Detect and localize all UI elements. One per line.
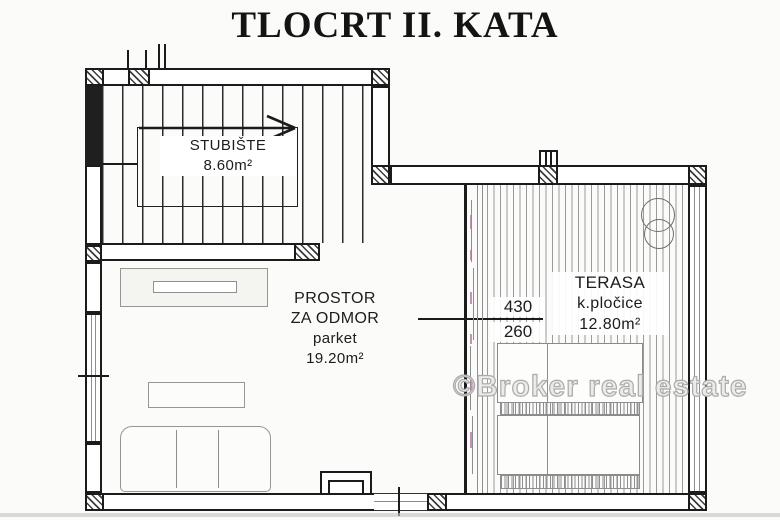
sliding-door-track <box>472 416 473 474</box>
dimension-depth: 260 <box>491 322 545 342</box>
chimney-tick <box>550 152 552 165</box>
glass-wall-line <box>464 185 467 493</box>
sofa-cushion-divider <box>218 430 219 488</box>
dimension-width: 430 <box>491 297 545 317</box>
chimney-tick <box>164 44 166 69</box>
staircase-name: STUBIŠTE <box>160 136 296 156</box>
lounger-divider <box>547 416 548 474</box>
terrace-floor: k.pločice <box>552 293 668 314</box>
terrace-name: TERASA <box>552 272 668 293</box>
chimney-tick <box>127 50 129 69</box>
chimney-tick <box>145 50 147 69</box>
wall-hatch-block <box>128 68 150 86</box>
scan-artifact-tick <box>470 215 472 229</box>
wall-left-upper <box>85 86 102 165</box>
wall-hatch-block <box>688 493 707 511</box>
wall-left-mid <box>85 165 102 245</box>
page-title: TLOCRT II. KATA <box>10 4 780 47</box>
glass-wall-line <box>477 185 478 493</box>
wall-hatch-block <box>538 165 558 185</box>
floor-plan-canvas: TLOCRT II. KATA STUBIŠTE 8.60m² TERASA k… <box>0 0 780 520</box>
lounge-name-line2: ZA ODMOR <box>270 309 400 329</box>
door-threshold-bottom <box>374 493 427 511</box>
wall-hatch-block <box>85 68 104 86</box>
terrace-area: 12.80m² <box>552 314 668 335</box>
sideboard <box>120 268 268 307</box>
staircase-area: 8.60m² <box>160 156 296 176</box>
terrace-label-block: TERASA k.pločice 12.80m² <box>552 272 668 335</box>
scan-artifact-tick <box>470 334 472 344</box>
wall-right-terrace <box>688 185 707 493</box>
wall-hatch-block <box>85 493 104 511</box>
chimney-tick <box>545 152 547 165</box>
lounger-cushion-band <box>500 475 640 489</box>
window-glazing-line <box>91 315 92 441</box>
scan-edge-bottom <box>0 513 780 517</box>
scan-artifact-tick <box>470 292 472 304</box>
chimney-tick <box>158 44 160 69</box>
lounge-area: 19.20m² <box>270 349 400 369</box>
watermark: ©Broker real estate <box>453 370 748 404</box>
lounge-floor: parket <box>270 329 400 349</box>
sun-lounger-lower <box>497 415 640 475</box>
scan-artifact-tick <box>470 250 472 260</box>
wall-hatch-block <box>371 68 390 86</box>
scan-artifact-tick <box>470 432 472 448</box>
glass-wall-line <box>482 185 483 493</box>
lounge-label-block: PROSTOR ZA ODMOR parket 19.20m² <box>270 289 400 369</box>
window-glazing-line <box>95 315 96 441</box>
sliding-door-track <box>473 268 474 340</box>
terrace-table-circle <box>644 219 674 249</box>
chimney-symbol <box>539 150 558 166</box>
wall-left-lounge <box>85 262 102 313</box>
staircase-label-block: STUBIŠTE 8.60m² <box>160 136 296 176</box>
door-tick <box>398 487 400 516</box>
sideboard-inner <box>153 281 237 293</box>
lounge-name-line1: PROSTOR <box>270 289 400 309</box>
railing-line <box>694 187 695 491</box>
wall-left-lower <box>85 443 102 493</box>
dimension-line <box>418 318 543 320</box>
wall-hatch-block <box>294 243 320 261</box>
wall-hatch-block <box>688 165 707 185</box>
threshold-line <box>374 501 427 502</box>
coffee-table <box>148 382 245 408</box>
window-left <box>85 313 102 443</box>
wall-staircase-bottom <box>85 243 320 261</box>
wall-hatch-block <box>427 493 447 511</box>
railing-line <box>699 187 700 491</box>
wall-hatch-block <box>85 245 102 262</box>
sofa <box>120 426 271 492</box>
stair-landing-line <box>100 163 138 165</box>
sofa-cushion-divider <box>176 430 177 488</box>
window-mullion-tick <box>78 375 109 377</box>
wall-hatch-block <box>371 165 390 185</box>
fireplace <box>320 471 372 494</box>
